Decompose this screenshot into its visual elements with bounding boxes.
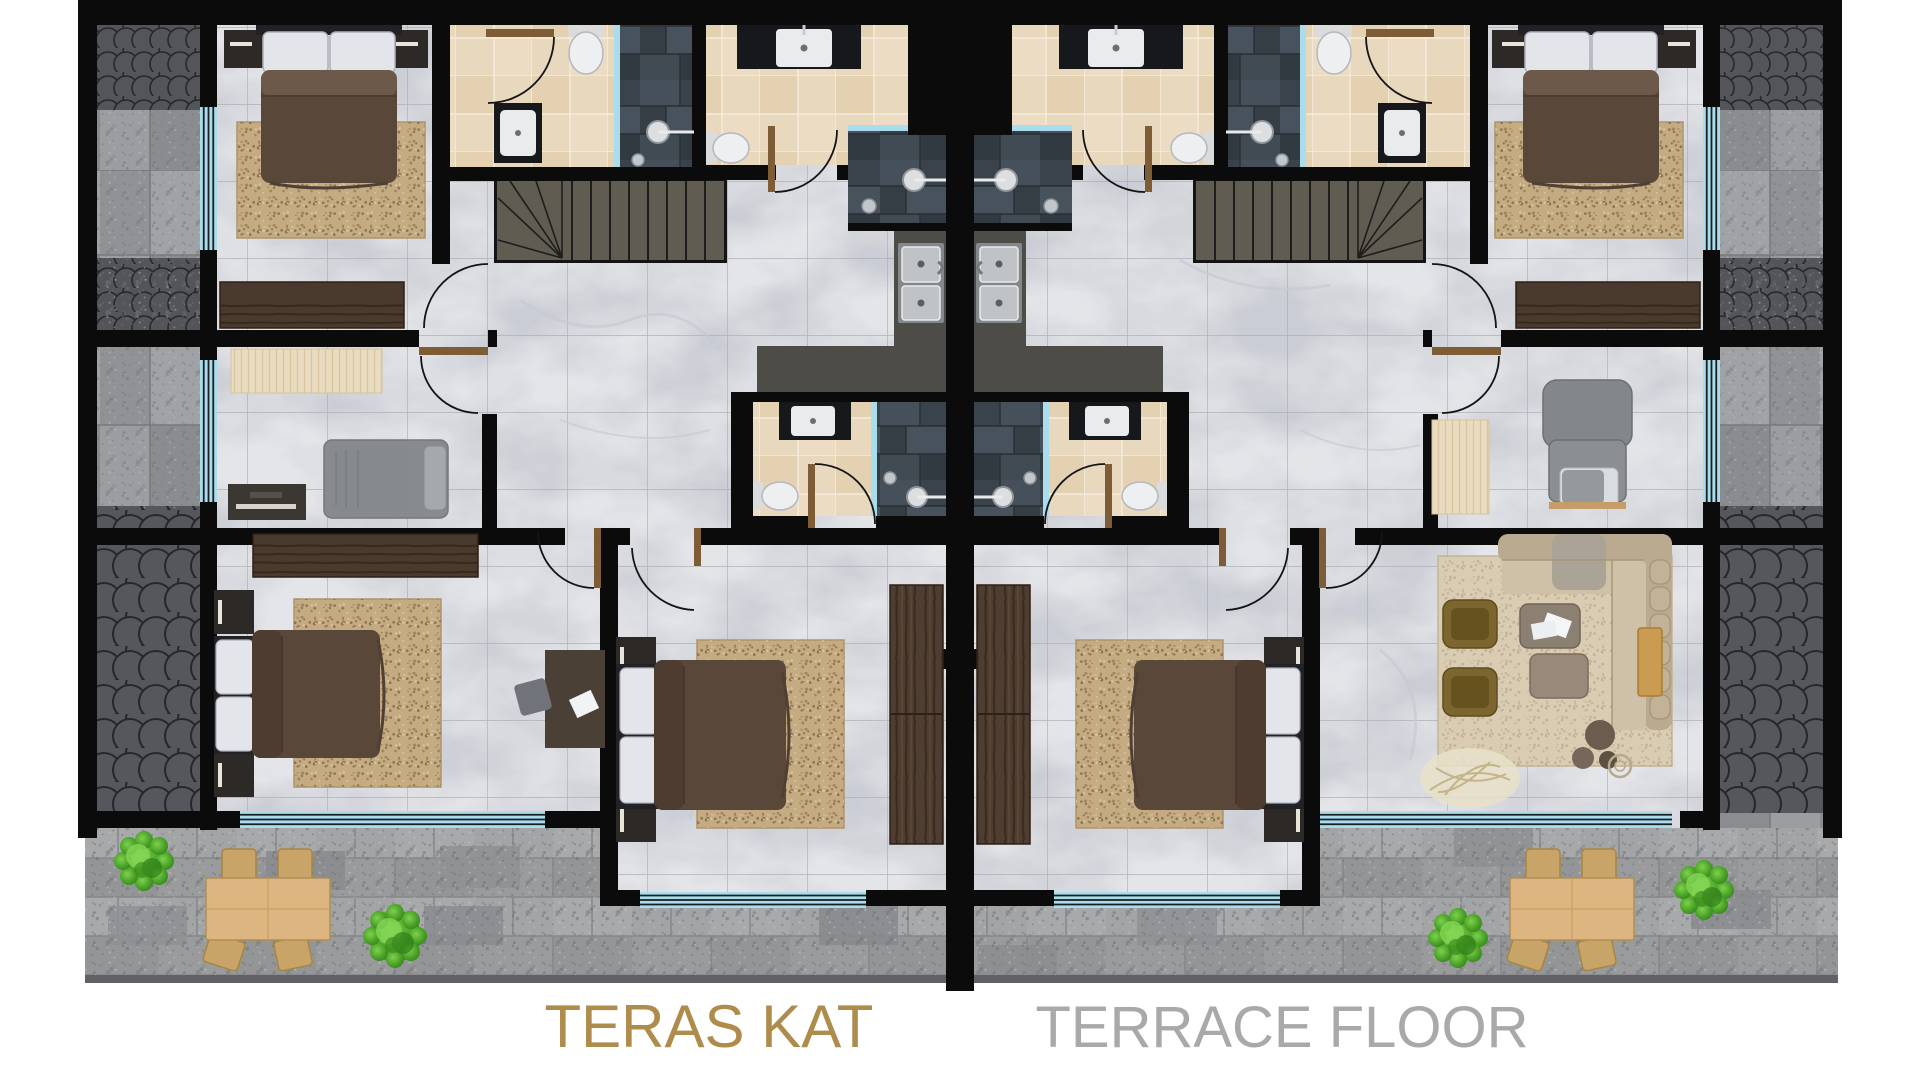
svg-text:TERRACE FLOOR: TERRACE FLOOR — [1035, 995, 1528, 1060]
svg-text:TERAS KAT: TERAS KAT — [545, 993, 874, 1060]
